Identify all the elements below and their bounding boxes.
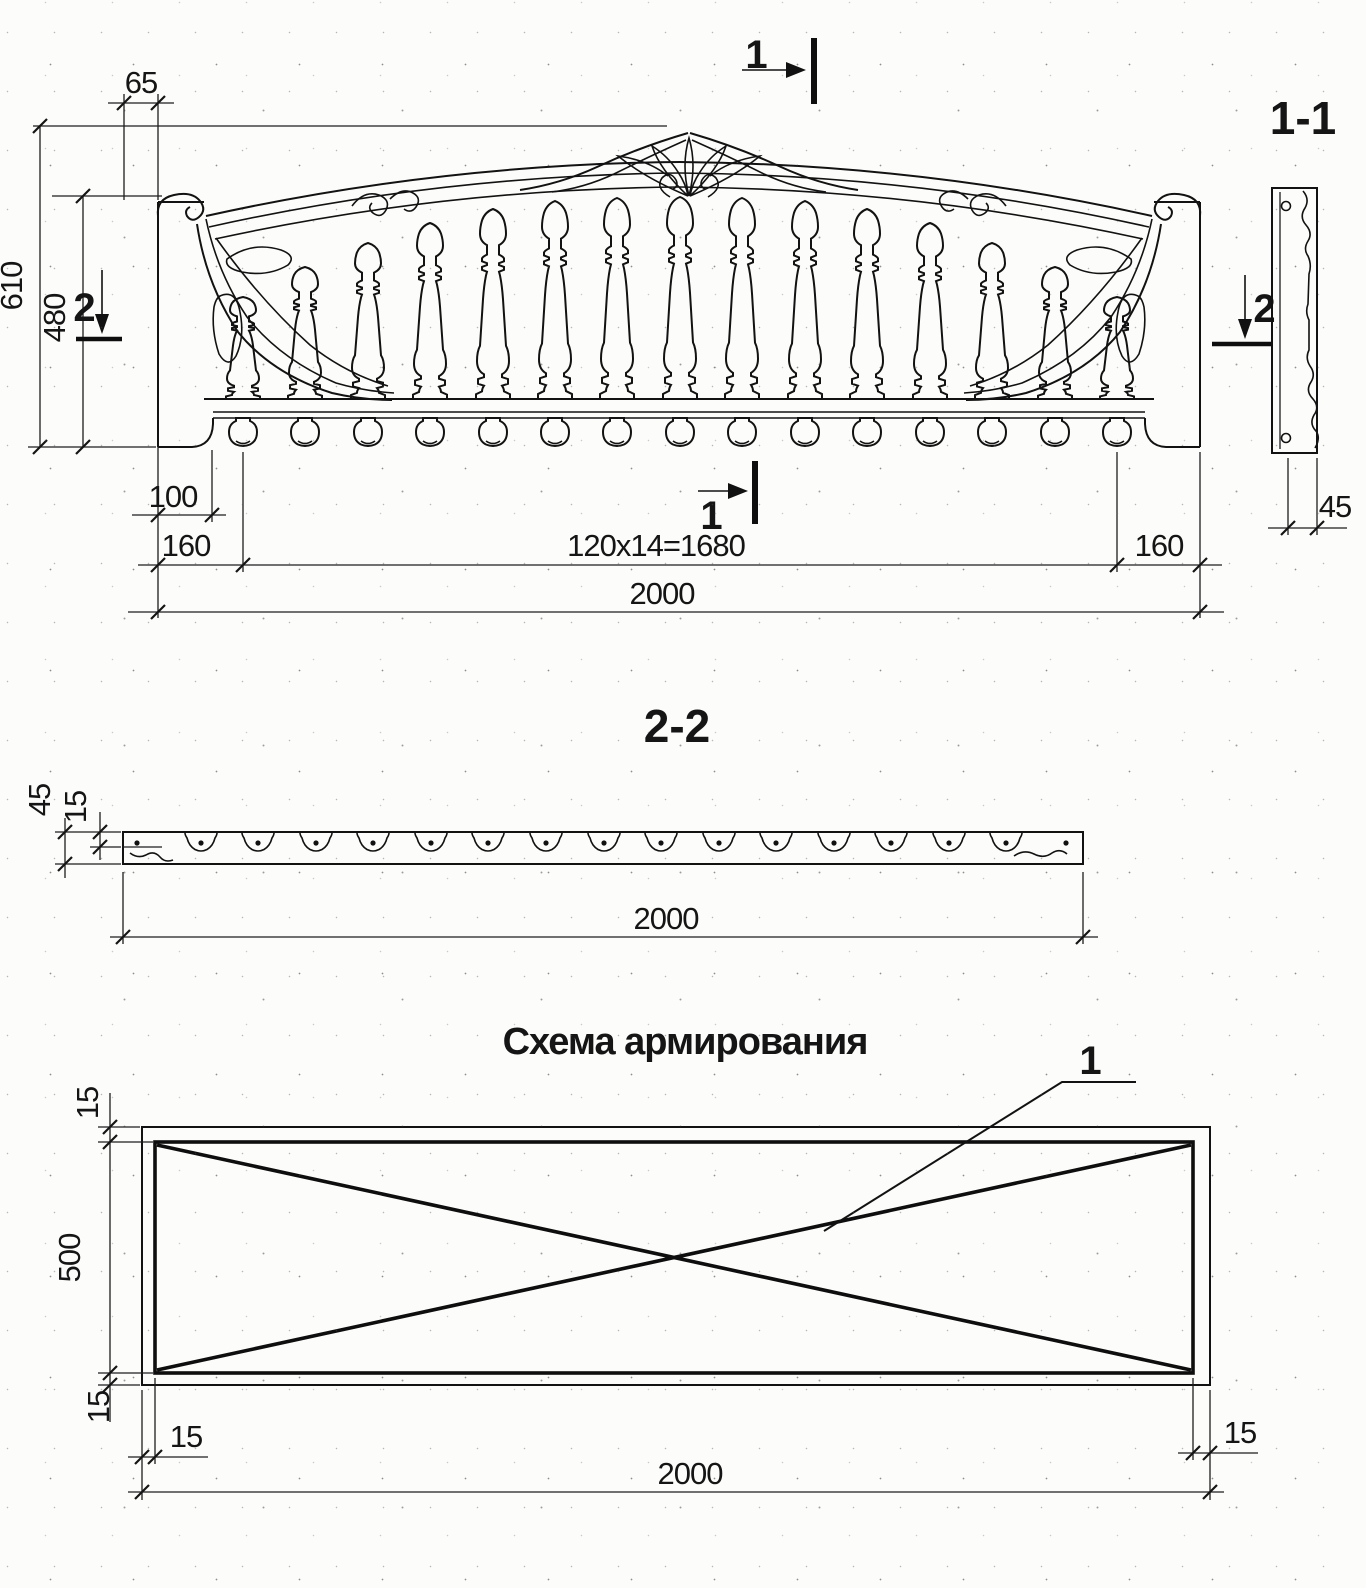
dim-65-label: 65: [125, 65, 157, 100]
section-mark-2-right: 2: [1212, 275, 1275, 344]
section-mark-1-top-label: 1: [745, 33, 767, 77]
drawing-sheet: 65 610 480 100 160 120x14=1680 160 2000 …: [0, 0, 1366, 1588]
section-2-2-title: 2-2: [644, 700, 710, 752]
rebar-callout-label: 1: [1079, 1039, 1101, 1083]
reinforcement-dimensions: 15 500 15 15 15 2000: [52, 1087, 1258, 1500]
section-mark-1-top: 1: [742, 33, 814, 104]
section-2-2-dim-15-label: 15: [58, 791, 93, 823]
dim-2000-label: 2000: [630, 576, 696, 611]
rail-drops: [229, 418, 1131, 446]
section-mark-1-bottom-label: 1: [700, 494, 722, 538]
section-2-2-dim-45-label: 45: [22, 784, 57, 816]
elevation-view: 65 610 480 100 160 120x14=1680 160 2000 …: [0, 33, 1275, 619]
baluster-cuts: [185, 833, 1022, 851]
dim-160-right-label: 160: [1135, 528, 1184, 563]
reinforcement-title: Схема армирования: [503, 1021, 868, 1063]
dim-480-label: 480: [37, 293, 72, 342]
section-2-2-view: 2-2 45 15: [22, 700, 1098, 944]
balusters: [226, 197, 1134, 399]
balustrade-drawing: 65 610 480 100 160 120x14=1680 160 2000 …: [0, 0, 1366, 1588]
dim-610-label: 610: [0, 261, 29, 310]
section-2-2-dim-2000-label: 2000: [634, 901, 700, 936]
reinforcement-view: Схема армирования 1 15 500 15 15: [52, 1021, 1258, 1500]
section-1-1-dim-45-label: 45: [1319, 489, 1351, 524]
dim-15-bottom-right-label: 15: [1224, 1415, 1256, 1450]
section-mark-1-bottom: 1: [698, 461, 755, 538]
section-mark-2-left: 2: [73, 270, 122, 339]
dim-15-bottom-label: 15: [81, 1391, 116, 1423]
dim-160-left-label: 160: [162, 528, 211, 563]
section-1-1-title: 1-1: [1270, 92, 1336, 144]
dim-15-bottom-left-label: 15: [170, 1419, 202, 1454]
section-mark-2-left-label: 2: [73, 286, 94, 330]
rebar-callout: 1: [824, 1039, 1136, 1231]
reinforcement-dim-2000-label: 2000: [658, 1456, 724, 1491]
section-1-1-view: 1-1 45: [1268, 92, 1351, 535]
dim-100-label: 100: [149, 479, 198, 514]
dim-500-label: 500: [52, 1233, 87, 1282]
dim-15-top-label: 15: [70, 1087, 105, 1119]
